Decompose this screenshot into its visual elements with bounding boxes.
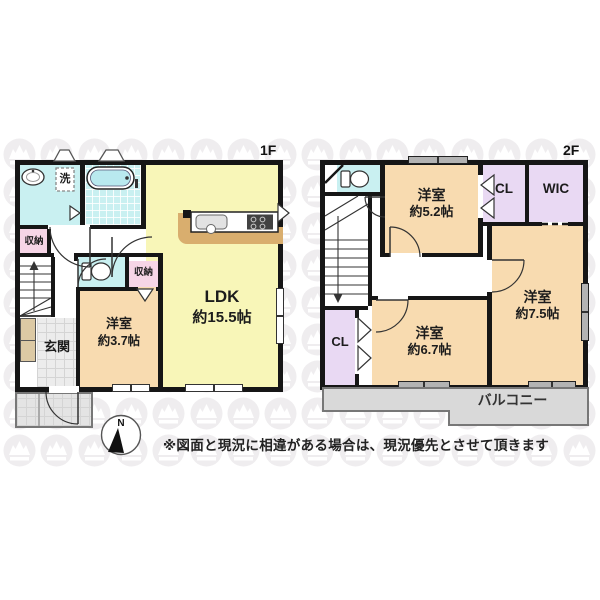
closet-top-label: CL — [483, 180, 525, 198]
kitchen-counter-base — [178, 227, 283, 244]
wall — [355, 374, 359, 385]
bedroom52-name: 洋室 — [385, 186, 478, 204]
room-toilet-1f — [78, 257, 125, 287]
floorplan-canvas: 1F 2F LDK 約15.5帖 洋室 約3.7帖 — [0, 0, 600, 600]
window — [185, 384, 243, 392]
entrance-door-opening — [49, 386, 79, 393]
bedroom75-name: 洋室 — [492, 288, 583, 306]
wall — [90, 225, 146, 229]
wall — [408, 296, 492, 300]
wall — [80, 165, 85, 225]
bedroom75-size: 約7.5帖 — [492, 306, 583, 323]
watermark-logo — [339, 397, 372, 430]
room-toilet-2f — [337, 165, 380, 192]
wall — [74, 253, 78, 261]
wall — [380, 253, 390, 257]
bedroom52-size: 約5.2帖 — [385, 204, 478, 221]
bedroom67-label: 洋室 約6.7帖 — [372, 324, 487, 359]
wall — [76, 287, 138, 291]
watermark-logo — [563, 434, 596, 467]
watermark-logo — [152, 397, 185, 430]
wall — [355, 310, 359, 318]
storage-b-label: 収納 — [128, 267, 159, 279]
wall — [478, 165, 483, 175]
bedroom75-label: 洋室 約7.5帖 — [492, 288, 583, 323]
porch-step-line — [38, 394, 40, 426]
watermark-logo — [376, 397, 409, 430]
wall — [372, 296, 378, 300]
bedroom52-label: 洋室 約5.2帖 — [385, 186, 478, 221]
watermark-logo — [227, 397, 260, 430]
wall — [325, 306, 368, 310]
wall — [74, 253, 163, 257]
bedroom67-size: 約6.7帖 — [372, 342, 487, 359]
bedroom37-label: 洋室 約3.7帖 — [80, 316, 158, 349]
kitchen-counter-side — [178, 213, 191, 233]
shoe-cabinet-divider — [21, 340, 35, 341]
wall — [141, 165, 146, 229]
laundry-label: 洗 — [56, 172, 74, 186]
watermark-logo — [190, 397, 223, 430]
disclaimer-text: ※図面と現況に相違がある場合は、現況優先とさせて頂きます — [163, 434, 549, 454]
bedroom67-name: 洋室 — [372, 324, 487, 342]
wall — [422, 253, 483, 257]
wall — [51, 257, 55, 317]
stairs-edge-line — [20, 315, 51, 317]
ldk-label: LDK 約15.5帖 — [162, 286, 282, 328]
watermark-logo — [3, 434, 36, 467]
entrance-label: 玄関 — [38, 339, 76, 356]
storage-a-label: 収納 — [19, 236, 49, 248]
wic-label: WIC — [529, 180, 583, 198]
floor2-label: 2F — [563, 142, 579, 158]
window — [112, 384, 150, 392]
ldk-size: 約15.5帖 — [162, 308, 282, 328]
window — [528, 381, 576, 389]
wall — [20, 225, 48, 229]
balcony-label: バルコニー — [440, 391, 585, 409]
window — [398, 381, 450, 389]
watermark-logo — [301, 397, 334, 430]
bedroom37-size: 約3.7帖 — [80, 333, 158, 349]
watermark-logo — [264, 397, 297, 430]
room-bathroom — [85, 165, 140, 225]
closet-bottom-label: CL — [325, 334, 355, 351]
bedroom37-name: 洋室 — [80, 316, 158, 333]
wall — [20, 253, 54, 257]
watermark-logo — [40, 434, 73, 467]
wall — [368, 196, 372, 306]
window — [408, 156, 468, 164]
ldk-name: LDK — [162, 286, 282, 308]
wall — [568, 222, 583, 226]
wall — [487, 225, 492, 260]
shoe-cabinet — [20, 318, 36, 362]
entrance-porch — [15, 392, 93, 428]
compass: N — [97, 410, 145, 458]
floor1-label: 1F — [260, 142, 276, 158]
room-ldk — [146, 165, 278, 387]
compass-north-label: N — [117, 418, 124, 429]
